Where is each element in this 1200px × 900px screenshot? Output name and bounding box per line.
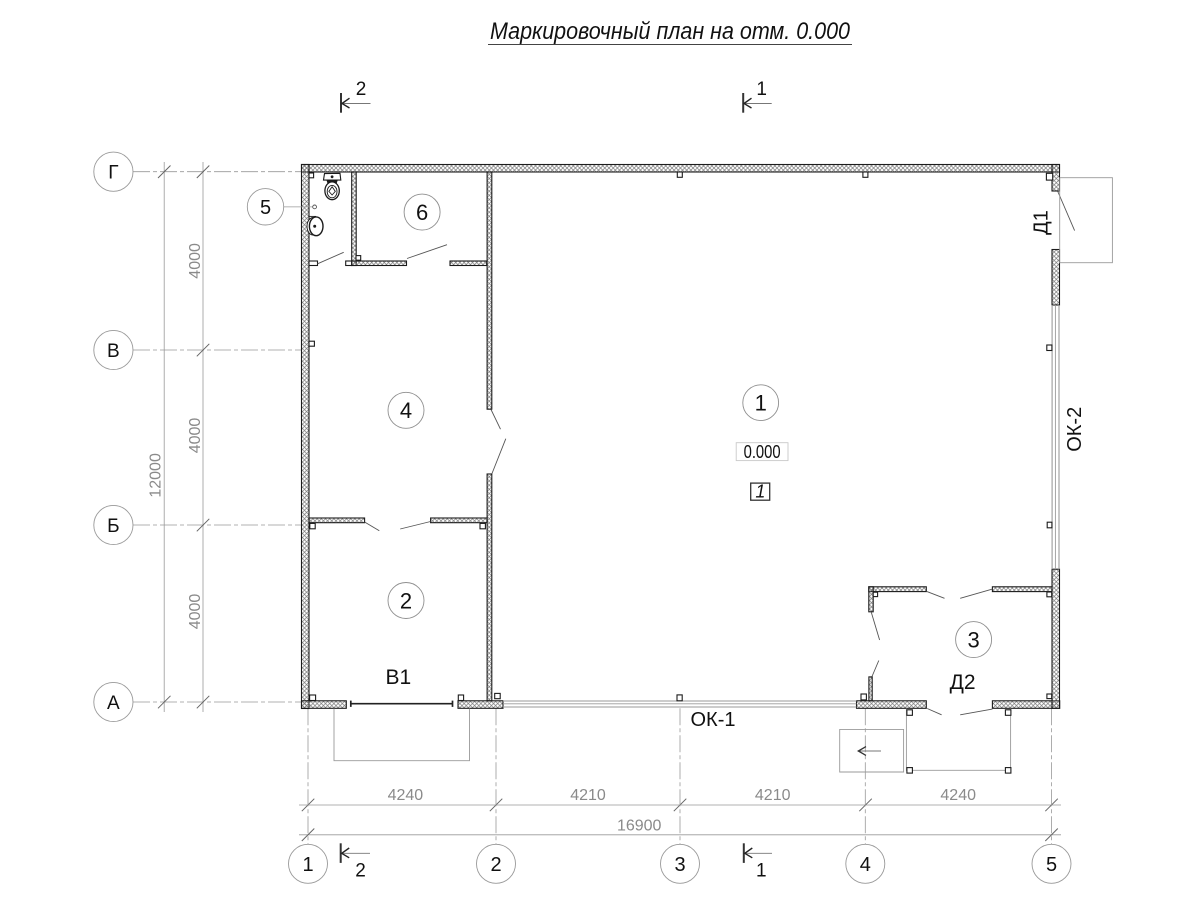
svg-text:3: 3 <box>674 854 685 876</box>
svg-text:Д1: Д1 <box>1030 210 1052 235</box>
svg-text:В: В <box>107 341 120 362</box>
svg-text:А: А <box>107 693 120 714</box>
svg-text:Маркировочный план на отм. 0.0: Маркировочный план на отм. 0.000 <box>490 18 851 45</box>
svg-text:4210: 4210 <box>570 787 606 804</box>
svg-text:16900: 16900 <box>617 817 662 834</box>
svg-text:В1: В1 <box>385 666 411 689</box>
svg-text:1: 1 <box>755 482 765 502</box>
svg-text:3: 3 <box>967 627 979 652</box>
svg-text:12000: 12000 <box>148 453 165 498</box>
svg-text:Б: Б <box>107 516 119 537</box>
svg-text:1: 1 <box>755 391 767 416</box>
svg-text:1: 1 <box>302 854 313 876</box>
svg-text:ОК-1: ОК-1 <box>691 709 736 731</box>
svg-text:ОК-2: ОК-2 <box>1064 407 1086 452</box>
svg-text:5: 5 <box>260 197 271 219</box>
svg-text:4000: 4000 <box>187 243 204 279</box>
svg-text:4: 4 <box>860 854 871 876</box>
svg-text:Д2: Д2 <box>950 671 976 694</box>
svg-text:4240: 4240 <box>940 787 976 804</box>
svg-text:Г: Г <box>108 163 118 184</box>
svg-text:0.000: 0.000 <box>744 441 781 462</box>
svg-text:1: 1 <box>756 79 767 100</box>
svg-text:4000: 4000 <box>187 594 204 630</box>
svg-text:2: 2 <box>355 861 366 882</box>
svg-text:5: 5 <box>1046 854 1057 876</box>
svg-text:2: 2 <box>356 79 367 100</box>
svg-text:1: 1 <box>756 861 767 882</box>
svg-text:4000: 4000 <box>187 418 204 454</box>
svg-text:4240: 4240 <box>388 787 424 804</box>
svg-text:4: 4 <box>400 398 412 423</box>
svg-text:2: 2 <box>490 854 501 876</box>
svg-text:6: 6 <box>416 200 428 225</box>
svg-text:2: 2 <box>400 588 412 613</box>
svg-text:4210: 4210 <box>755 787 791 804</box>
